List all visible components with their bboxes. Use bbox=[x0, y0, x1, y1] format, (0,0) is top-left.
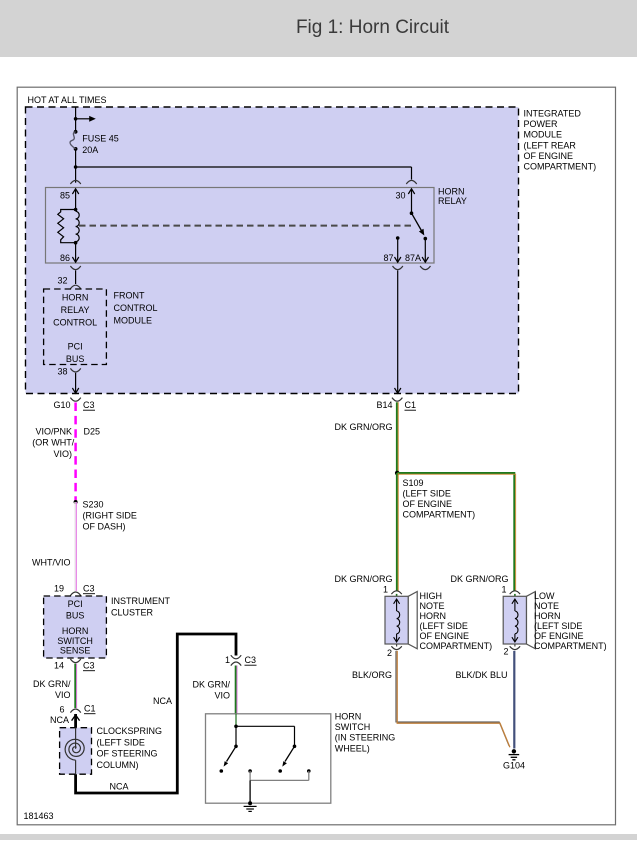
svg-text:DK GRN/: DK GRN/ bbox=[33, 679, 71, 689]
svg-text:C3: C3 bbox=[83, 661, 95, 671]
svg-text:CLOCKSPRING: CLOCKSPRING bbox=[97, 726, 163, 736]
svg-text:BUS: BUS bbox=[66, 611, 85, 621]
svg-text:VIO): VIO) bbox=[53, 449, 72, 459]
svg-text:NCA: NCA bbox=[109, 782, 128, 792]
svg-text:BLK/ORG: BLK/ORG bbox=[352, 670, 392, 680]
svg-text:C1: C1 bbox=[405, 400, 417, 410]
svg-text:DK GRN/ORG: DK GRN/ORG bbox=[334, 574, 392, 584]
svg-text:1: 1 bbox=[225, 655, 230, 665]
svg-text:C3: C3 bbox=[245, 655, 257, 665]
svg-text:BLK/DK BLU: BLK/DK BLU bbox=[455, 670, 507, 680]
svg-text:OF ENGINE: OF ENGINE bbox=[524, 151, 574, 161]
svg-text:OF STEERING: OF STEERING bbox=[97, 749, 158, 759]
svg-text:HOT AT ALL TIMES: HOT AT ALL TIMES bbox=[28, 95, 107, 105]
svg-text:86: 86 bbox=[60, 253, 70, 263]
svg-text:D25: D25 bbox=[84, 427, 101, 437]
svg-text:NCA: NCA bbox=[50, 715, 69, 725]
svg-text:87: 87 bbox=[383, 253, 393, 263]
svg-text:19: 19 bbox=[54, 584, 64, 594]
svg-text:CLUSTER: CLUSTER bbox=[111, 608, 154, 618]
svg-text:SWITCH: SWITCH bbox=[57, 636, 93, 646]
svg-text:LOW: LOW bbox=[534, 591, 555, 601]
svg-text:(LEFT SIDE: (LEFT SIDE bbox=[420, 621, 468, 631]
svg-text:1: 1 bbox=[383, 584, 388, 594]
svg-text:(RIGHT SIDE: (RIGHT SIDE bbox=[83, 511, 137, 521]
svg-text:SWITCH: SWITCH bbox=[335, 722, 371, 732]
svg-text:S109: S109 bbox=[403, 478, 424, 488]
svg-text:(LEFT REAR: (LEFT REAR bbox=[524, 140, 577, 150]
svg-text:2: 2 bbox=[503, 647, 508, 657]
svg-text:HORN: HORN bbox=[534, 611, 561, 621]
svg-text:HORN: HORN bbox=[420, 611, 447, 621]
svg-text:(LEFT SIDE: (LEFT SIDE bbox=[97, 737, 145, 747]
svg-text:HORN: HORN bbox=[62, 293, 89, 303]
svg-text:C3: C3 bbox=[83, 584, 95, 594]
svg-text:COMPARTMENT): COMPARTMENT) bbox=[420, 641, 493, 651]
svg-text:Fig 1: Horn Circuit: Fig 1: Horn Circuit bbox=[296, 17, 450, 38]
svg-text:S230: S230 bbox=[83, 500, 104, 510]
svg-text:HIGH: HIGH bbox=[420, 591, 443, 601]
svg-text:HORN: HORN bbox=[335, 712, 362, 722]
svg-text:(LEFT SIDE: (LEFT SIDE bbox=[403, 488, 451, 498]
svg-text:COMPARTMENT): COMPARTMENT) bbox=[524, 162, 597, 172]
svg-text:VIO/PNK: VIO/PNK bbox=[35, 427, 72, 437]
svg-text:38: 38 bbox=[57, 367, 67, 377]
svg-text:C1: C1 bbox=[84, 704, 96, 714]
svg-text:WHT/VIO: WHT/VIO bbox=[32, 558, 71, 568]
svg-text:OF ENGINE: OF ENGINE bbox=[534, 631, 584, 641]
svg-text:NCA: NCA bbox=[153, 696, 172, 706]
svg-text:HORN: HORN bbox=[62, 626, 89, 636]
svg-text:181463: 181463 bbox=[24, 811, 54, 821]
svg-text:G104: G104 bbox=[503, 761, 525, 771]
svg-text:WHEEL): WHEEL) bbox=[335, 743, 370, 753]
svg-text:DK GRN/: DK GRN/ bbox=[192, 680, 230, 690]
svg-text:30: 30 bbox=[395, 191, 405, 201]
svg-text:2: 2 bbox=[387, 648, 392, 658]
svg-text:20A: 20A bbox=[82, 145, 98, 155]
svg-text:POWER: POWER bbox=[524, 119, 559, 129]
svg-text:32: 32 bbox=[57, 276, 67, 286]
svg-text:MODULE: MODULE bbox=[524, 130, 563, 140]
svg-text:(OR WHT/: (OR WHT/ bbox=[32, 438, 74, 448]
svg-text:INSTRUMENT: INSTRUMENT bbox=[111, 596, 170, 606]
svg-text:FUSE 45: FUSE 45 bbox=[82, 134, 119, 144]
svg-text:87A: 87A bbox=[405, 253, 421, 263]
svg-text:14: 14 bbox=[54, 661, 64, 671]
svg-text:FRONT: FRONT bbox=[114, 291, 145, 301]
svg-text:BUS: BUS bbox=[66, 354, 85, 364]
svg-text:OF ENGINE: OF ENGINE bbox=[403, 499, 453, 509]
svg-text:COMPARTMENT): COMPARTMENT) bbox=[534, 641, 607, 651]
svg-text:RELAY: RELAY bbox=[438, 196, 467, 206]
svg-text:VIO: VIO bbox=[214, 691, 230, 701]
svg-text:DK GRN/ORG: DK GRN/ORG bbox=[334, 422, 392, 432]
svg-text:1: 1 bbox=[501, 584, 506, 594]
svg-text:CONTROL: CONTROL bbox=[114, 303, 158, 313]
svg-text:OF DASH): OF DASH) bbox=[83, 522, 126, 532]
svg-text:NOTE: NOTE bbox=[420, 601, 445, 611]
svg-text:MODULE: MODULE bbox=[114, 316, 153, 326]
svg-text:SENSE: SENSE bbox=[60, 645, 91, 655]
svg-text:(LEFT SIDE: (LEFT SIDE bbox=[534, 621, 582, 631]
svg-text:C3: C3 bbox=[83, 400, 95, 410]
svg-text:HORN: HORN bbox=[438, 187, 465, 197]
svg-text:(IN STEERING: (IN STEERING bbox=[335, 733, 396, 743]
svg-text:RELAY: RELAY bbox=[61, 305, 90, 315]
svg-text:NOTE: NOTE bbox=[534, 601, 559, 611]
svg-text:G10: G10 bbox=[53, 400, 70, 410]
svg-text:VIO: VIO bbox=[55, 690, 71, 700]
svg-text:B14: B14 bbox=[376, 400, 392, 410]
svg-text:PCI: PCI bbox=[68, 342, 83, 352]
svg-text:6: 6 bbox=[59, 705, 64, 715]
svg-text:INTEGRATED: INTEGRATED bbox=[524, 109, 582, 119]
svg-text:DK GRN/ORG: DK GRN/ORG bbox=[450, 574, 508, 584]
svg-text:PCI: PCI bbox=[68, 599, 83, 609]
svg-text:COMPARTMENT): COMPARTMENT) bbox=[403, 510, 476, 520]
svg-text:CONTROL: CONTROL bbox=[53, 318, 97, 328]
svg-text:OF ENGINE: OF ENGINE bbox=[420, 631, 470, 641]
svg-text:85: 85 bbox=[60, 191, 70, 201]
svg-text:COLUMN): COLUMN) bbox=[97, 760, 139, 770]
